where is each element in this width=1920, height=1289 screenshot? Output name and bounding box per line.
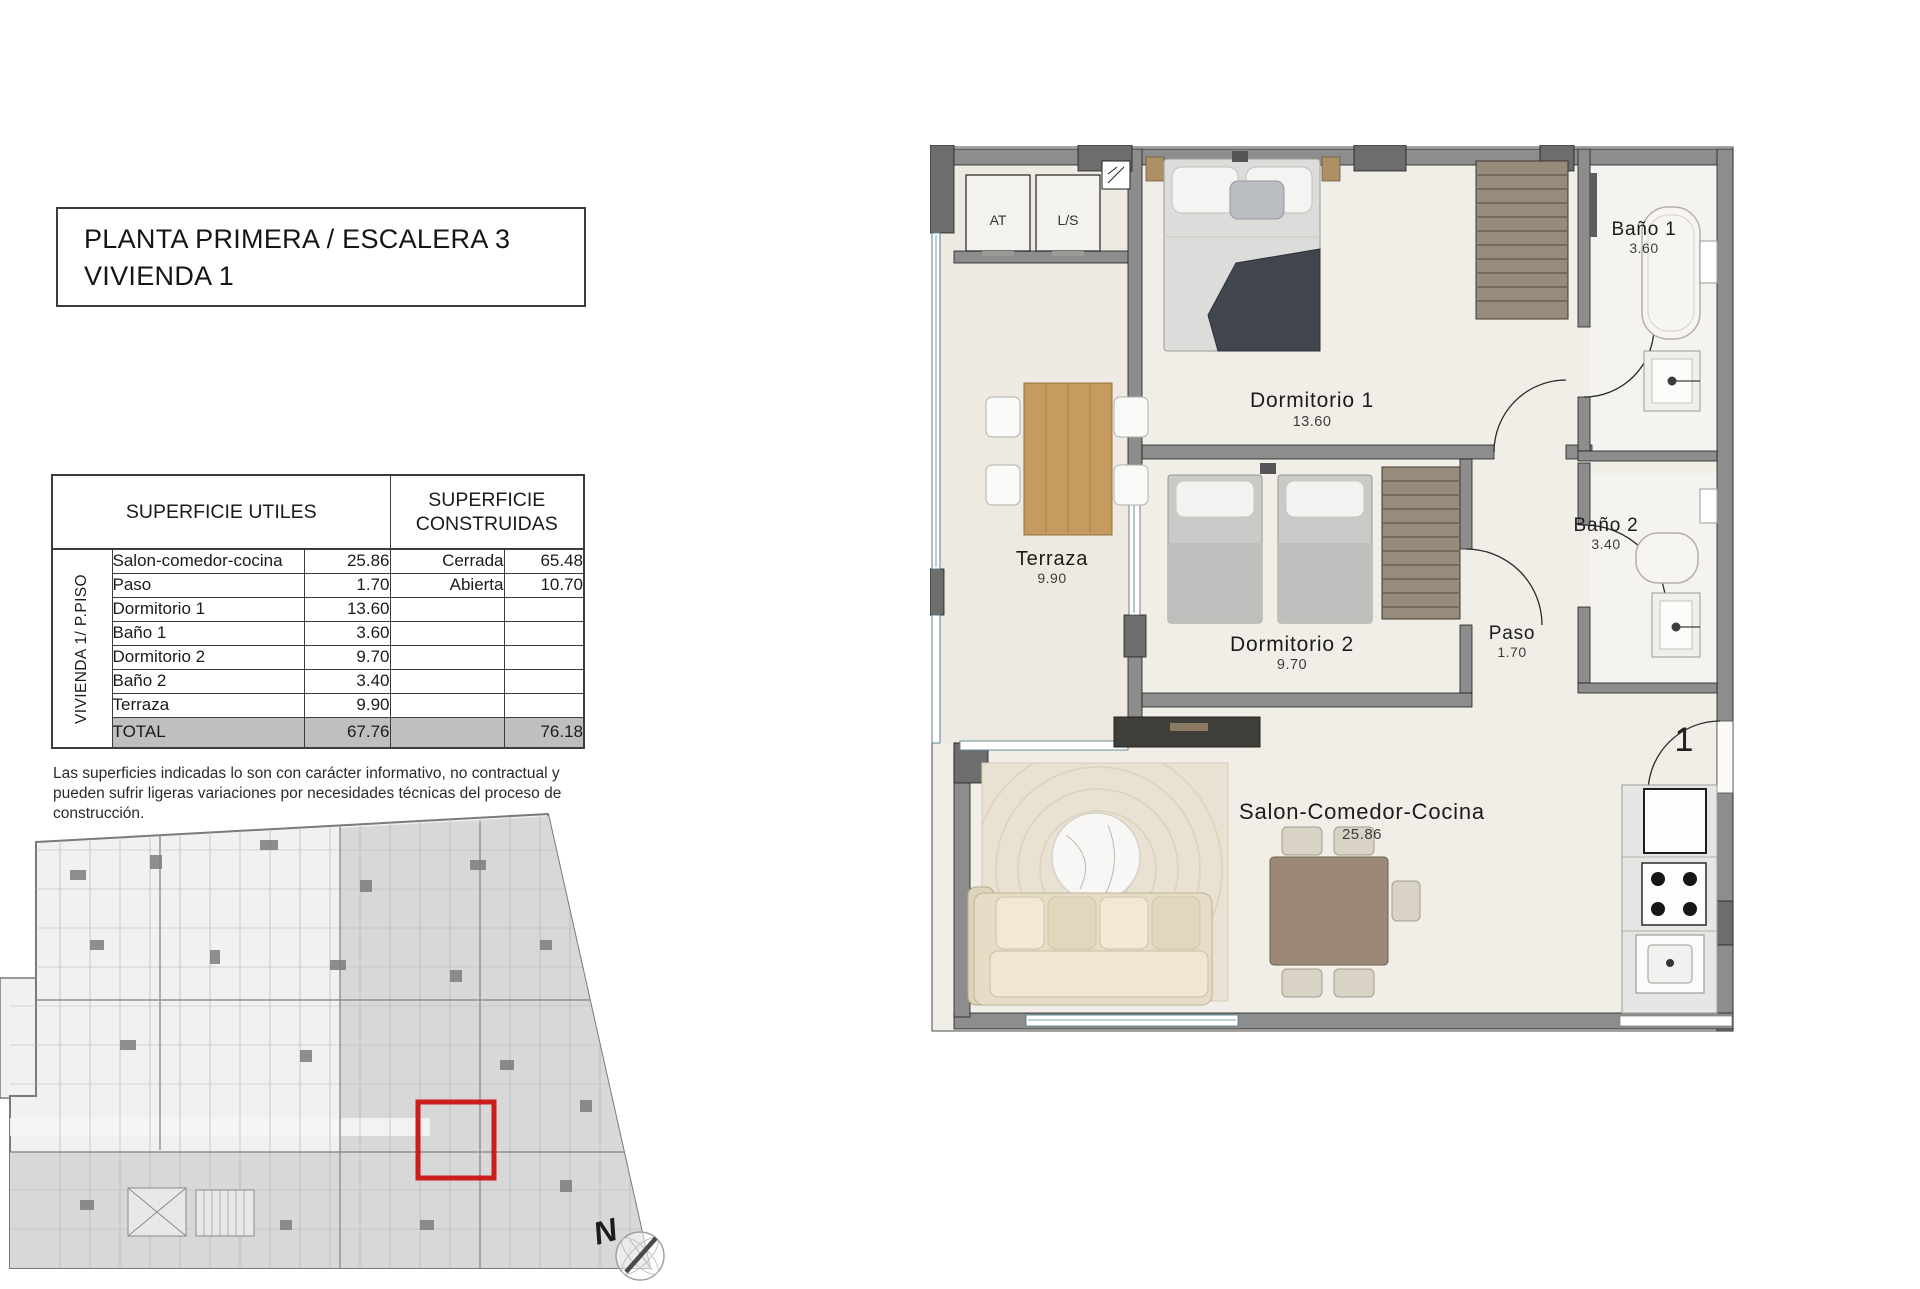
label-bano1: Baño 1	[1611, 219, 1676, 240]
chair	[1392, 881, 1420, 921]
area-dormitorio2: 9.70	[1277, 657, 1307, 673]
label-ls-closet: L/S	[1057, 212, 1078, 228]
area-bano2: 3.40	[1591, 536, 1620, 552]
empty-cell	[390, 645, 504, 669]
wardrobe-dorm2	[1382, 467, 1460, 619]
label-terraza: Terraza	[1016, 548, 1088, 570]
label-salon: Salon-Comedor-Cocina	[1239, 799, 1485, 824]
chair	[986, 397, 1020, 437]
chair	[1114, 397, 1148, 437]
empty-cell	[390, 597, 504, 621]
empty-cell	[504, 693, 584, 717]
toilet	[1700, 489, 1717, 523]
area-terraza: 9.90	[1037, 570, 1066, 586]
group-label: VIVIENDA 1/ P.PISO	[73, 574, 91, 724]
room-area-cell: 1.70	[304, 573, 390, 597]
plan-title-box: PLANTA PRIMERA / ESCALERA 3 VIVIENDA 1	[56, 207, 586, 307]
total-utiles-cell: 67.76	[304, 717, 390, 748]
empty-cell	[390, 717, 504, 748]
table-row: Dormitorio 2 9.70	[52, 645, 584, 669]
bathtub	[1636, 533, 1698, 583]
room-area-cell: 25.86	[304, 549, 390, 573]
dining-table	[1270, 857, 1388, 965]
wall-sconce	[1232, 151, 1248, 162]
table-row: Baño 1 3.60	[52, 621, 584, 645]
room-name-cell: Salon-comedor-cocina	[112, 549, 304, 573]
faucet	[1668, 377, 1677, 386]
room-name-cell: Dormitorio 1	[112, 597, 304, 621]
total-construidas-cell: 76.18	[504, 717, 584, 748]
label-paso: Paso	[1489, 623, 1536, 644]
construidas-name-cell: Abierta	[390, 573, 504, 597]
fridge	[1644, 789, 1706, 853]
surfaces-table: SUPERFICIE UTILES SUPERFICIE CONSTRUIDAS…	[51, 474, 585, 749]
building-wing	[0, 978, 38, 1098]
construidas-name-cell: Cerrada	[390, 549, 504, 573]
pillow	[1286, 481, 1364, 517]
room-area-cell: 9.90	[304, 693, 390, 717]
unit-number: 1	[1675, 721, 1694, 759]
site-plan: N	[0, 800, 690, 1284]
pillow	[1176, 481, 1254, 517]
room-name-cell: Paso	[112, 573, 304, 597]
kitchen	[1622, 785, 1717, 1013]
chair	[1282, 827, 1322, 855]
empty-cell	[504, 645, 584, 669]
construidas-header: SUPERFICIE CONSTRUIDAS	[390, 475, 584, 549]
chair	[1282, 969, 1322, 997]
area-dormitorio1: 13.60	[1293, 414, 1332, 430]
room-name-cell: Baño 1	[112, 621, 304, 645]
area-paso: 1.70	[1497, 644, 1526, 660]
sofa	[968, 887, 1212, 1005]
floorplan-drawing: Dormitorio 1 13.60 Baño 1 3.60 Terraza 9…	[930, 145, 1745, 1043]
stove	[1642, 863, 1706, 925]
construidas-value-cell: 10.70	[504, 573, 584, 597]
siteplan-drawing: N	[0, 800, 690, 1284]
room-area-cell: 9.70	[304, 645, 390, 669]
room-name-cell: Baño 2	[112, 669, 304, 693]
table-row: Dormitorio 1 13.60	[52, 597, 584, 621]
marble-decor	[1052, 813, 1140, 901]
room-area-cell: 13.60	[304, 597, 390, 621]
nightstand	[1146, 157, 1164, 181]
group-label-cell: VIVIENDA 1/ P.PISO	[52, 549, 112, 748]
table-row: Terraza 9.90	[52, 693, 584, 717]
pillow	[1172, 167, 1238, 213]
label-bano2: Baño 2	[1573, 515, 1638, 536]
chair	[986, 465, 1020, 505]
empty-cell	[504, 669, 584, 693]
room-area-cell: 3.40	[304, 669, 390, 693]
empty-cell	[504, 621, 584, 645]
empty-cell	[390, 621, 504, 645]
label-dormitorio1: Dormitorio 1	[1250, 389, 1374, 412]
total-label-cell: TOTAL	[112, 717, 304, 748]
chair	[1334, 969, 1374, 997]
wall-sconce	[1260, 463, 1276, 474]
room-name-cell: Dormitorio 2	[112, 645, 304, 669]
dormitorio2-furniture	[1168, 463, 1460, 623]
table-row: VIVIENDA 1/ P.PISO Salon-comedor-cocina …	[52, 549, 584, 573]
entrance-opening	[1717, 721, 1733, 793]
construidas-value-cell: 65.48	[504, 549, 584, 573]
empty-cell	[504, 597, 584, 621]
label-dormitorio2: Dormitorio 2	[1230, 633, 1354, 656]
table-total-row: TOTAL 67.76 76.18	[52, 717, 584, 748]
nightstand	[1322, 157, 1340, 181]
room-name-cell: Terraza	[112, 693, 304, 717]
faucet	[1672, 623, 1681, 632]
empty-cell	[390, 693, 504, 717]
tv-sideboard	[1114, 717, 1260, 747]
label-at-closet: AT	[990, 212, 1007, 228]
plan-title-line1: PLANTA PRIMERA / ESCALERA 3	[84, 221, 584, 258]
chair	[1114, 465, 1148, 505]
area-salon: 25.86	[1342, 826, 1382, 843]
utiles-header: SUPERFICIE UTILES	[52, 475, 390, 549]
wardrobe-dorm1	[1476, 161, 1568, 319]
plan-title-line2: VIVIENDA 1	[84, 258, 584, 295]
toilet	[1700, 241, 1717, 283]
room-area-cell: 3.60	[304, 621, 390, 645]
table-row: Paso 1.70 Abierta 10.70	[52, 573, 584, 597]
table-header-row: SUPERFICIE UTILES SUPERFICIE CONSTRUIDAS	[52, 475, 584, 549]
pillow-dark	[1230, 181, 1284, 219]
table-row: Baño 2 3.40	[52, 669, 584, 693]
apartment-floorplan: Dormitorio 1 13.60 Baño 1 3.60 Terraza 9…	[930, 145, 1745, 1043]
surfaces-table-grid: SUPERFICIE UTILES SUPERFICIE CONSTRUIDAS…	[51, 474, 585, 749]
empty-cell	[390, 669, 504, 693]
area-bano1: 3.60	[1629, 240, 1658, 256]
